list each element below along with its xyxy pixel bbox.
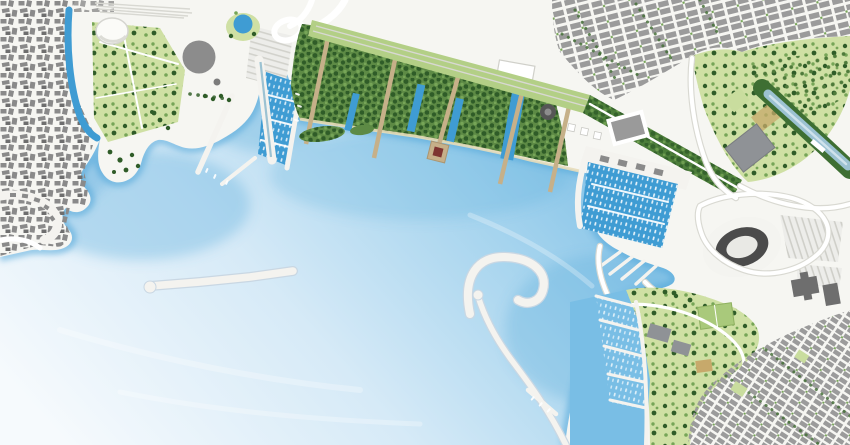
masterplan-map [0,0,850,445]
pier-platform [427,141,449,163]
circular-building [183,41,216,74]
masterplan-svg [0,0,850,445]
south-marina-piers [570,290,650,445]
